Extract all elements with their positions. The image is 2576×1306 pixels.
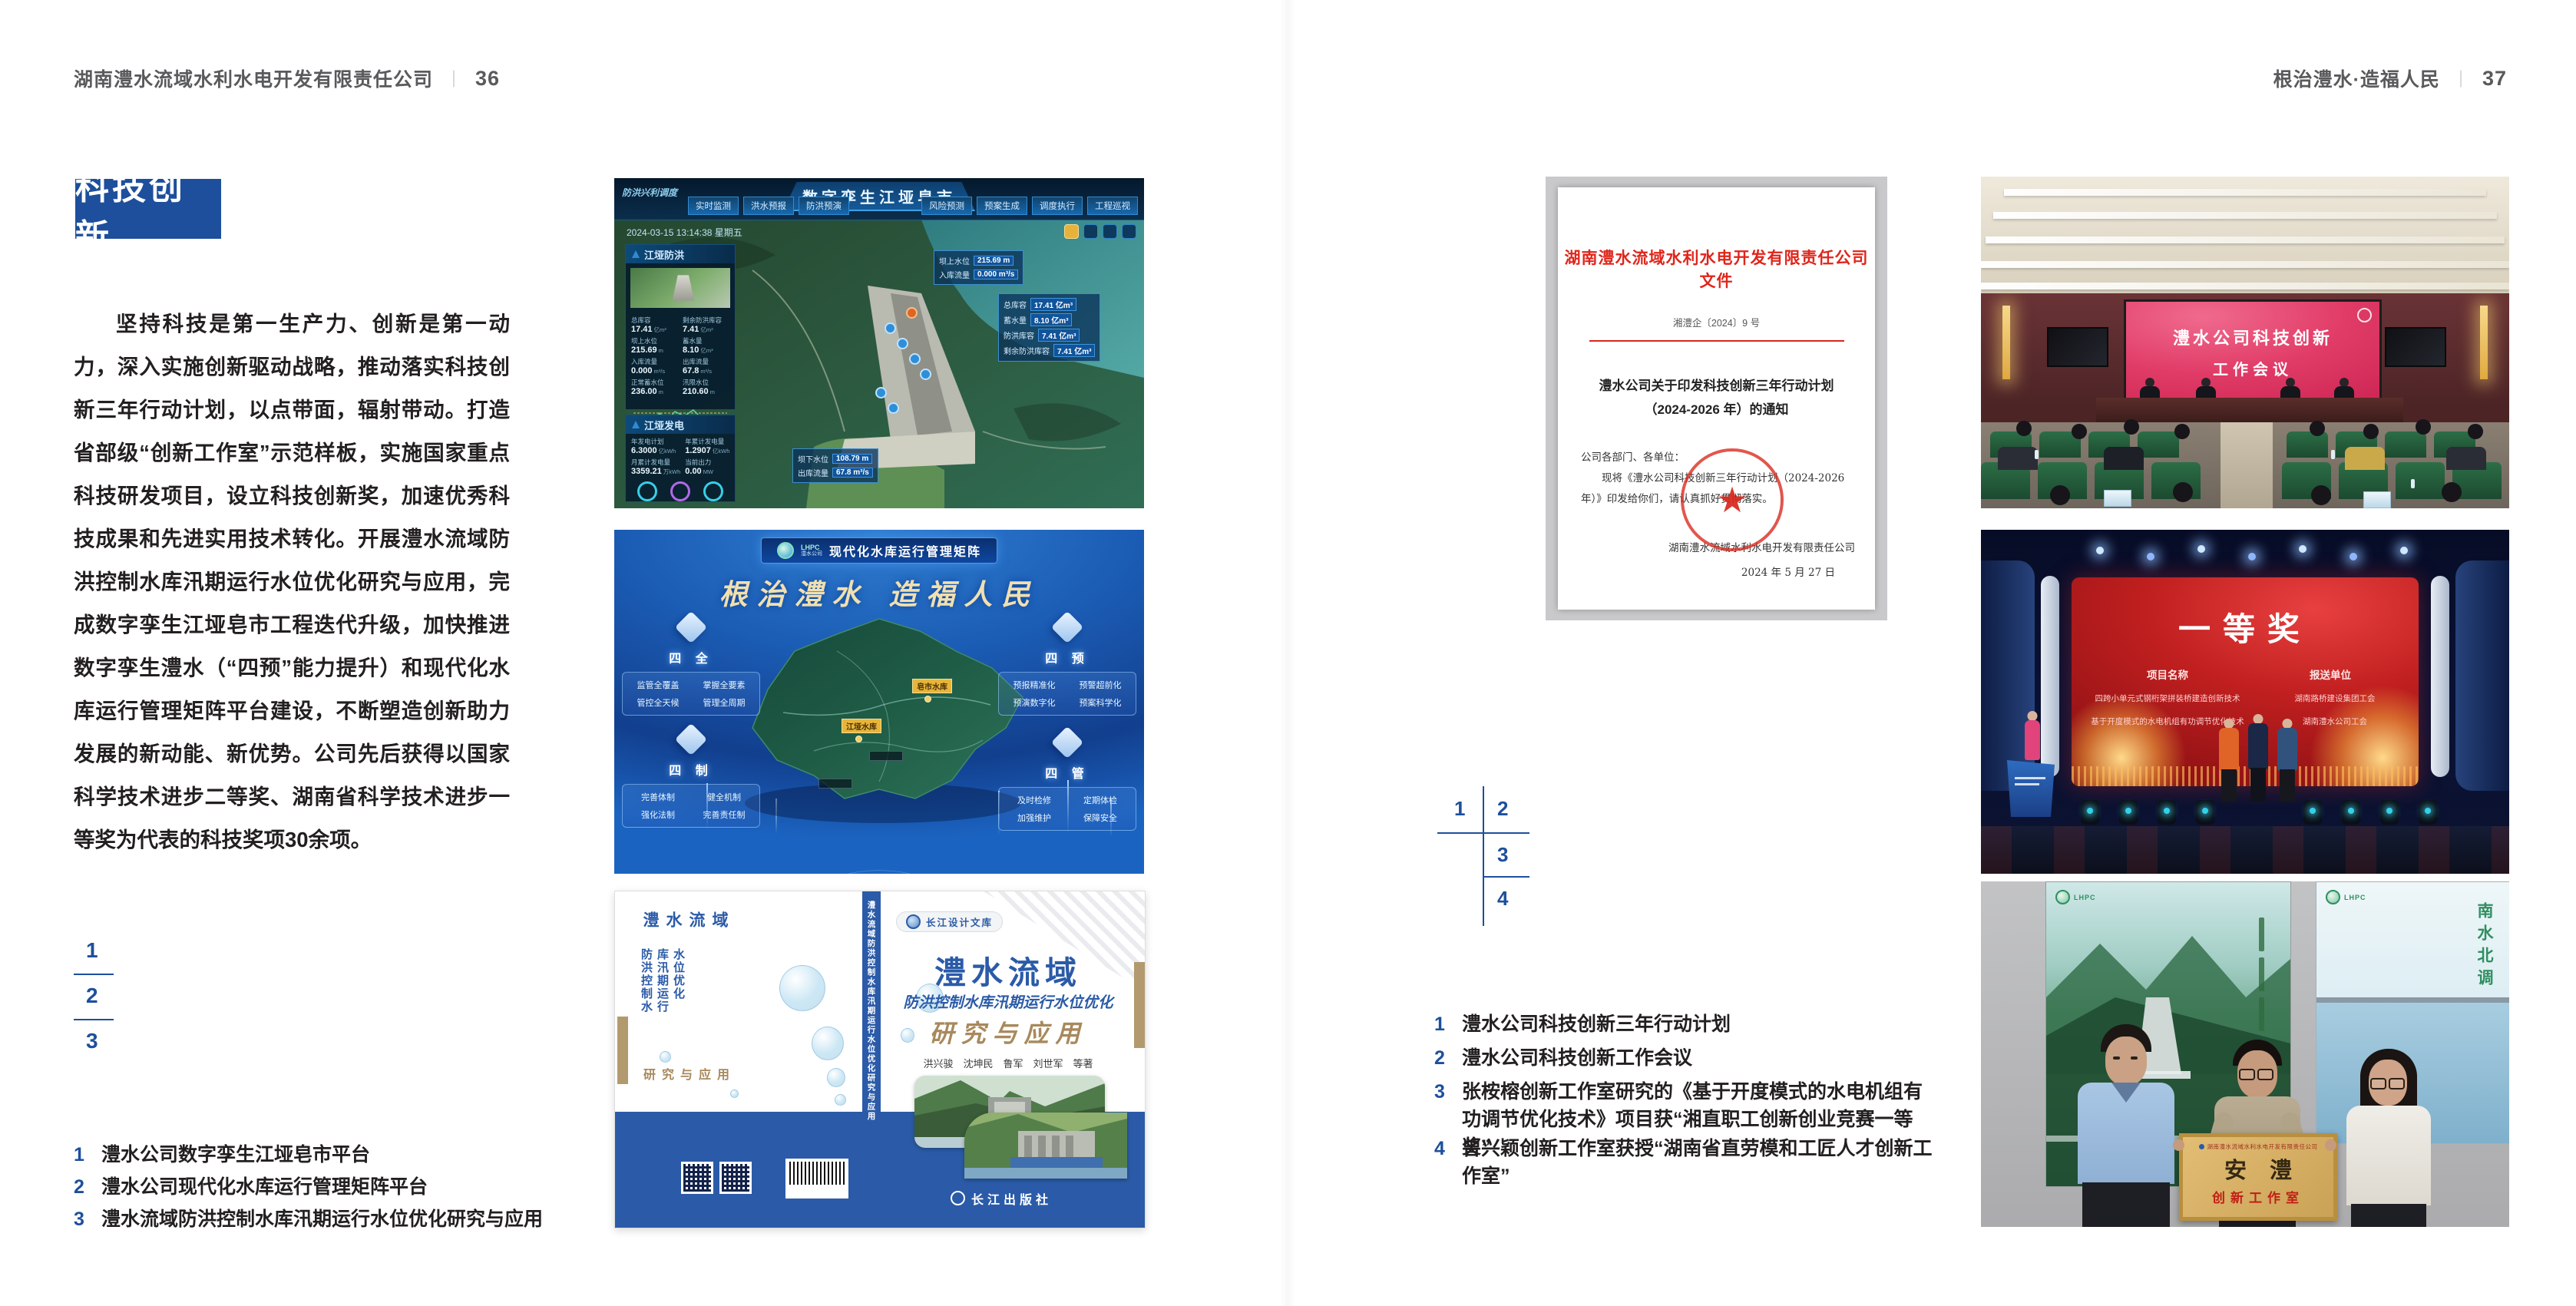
power-panel-title: 江垭发电 [626, 415, 735, 434]
moving-head-light [2119, 800, 2138, 825]
corner-item: 健全机制 [693, 791, 756, 803]
caption-text: 曾兴颖创新工作室获授“湖南省直劳模和工匠人才创新工作室” [1462, 1135, 1941, 1190]
host-podium [2007, 760, 2055, 817]
moving-head-light [2303, 800, 2322, 825]
timestamp: 2024-03-15 13:14:38 星期五 [627, 226, 742, 239]
platform-title: 现代化水库运行管理矩阵 [829, 541, 981, 560]
logo-abbr: LHPC [2344, 894, 2366, 901]
stat-value: 1.2907亿kWh [685, 446, 729, 455]
water-drop [812, 1027, 844, 1060]
photo-book-cover: 澧水流域 防洪控制水库汛期运行水位优化 研究与应用 澧水流域防洪控制水库汛期运行… [614, 891, 1146, 1228]
wall-tv [2047, 327, 2108, 367]
stat-label: 出库流量 [683, 357, 729, 366]
callout-value: 7.41 亿m³ [1053, 344, 1095, 357]
corner-title: 四 管 [1045, 763, 1089, 782]
caption-row: 1 澧水公司数字孪生江垭皂市平台 [74, 1141, 565, 1169]
caption-number: 3 [74, 1205, 89, 1233]
body-paragraph: 坚持科技是第一生产力、创新是第一动力，深入实施创新驱动战略，推动落实科技创新三年… [74, 303, 510, 861]
corner-item: 保障安全 [1069, 812, 1132, 824]
audience-head [2174, 424, 2190, 439]
marker-station [818, 779, 852, 789]
stage-light [2096, 547, 2104, 554]
document-title-line1: 澧水公司关于印发科技创新三年行动计划 [1558, 374, 1875, 398]
marker-zaoshi-reservoir: 皂市水库 [912, 679, 952, 693]
rostrum-person [2333, 378, 2356, 399]
rfig-index-3: 3 [1497, 843, 1508, 867]
moving-head-light [2196, 800, 2214, 825]
corner-item: 掌握全要素 [693, 679, 756, 691]
cube-icon [1051, 726, 1083, 759]
back-title-line3: 研究与应用 [638, 1068, 730, 1096]
rfig-horizontal-rule [1437, 832, 1529, 834]
alert-dot [906, 307, 918, 319]
stat-label: 入库流量 [631, 357, 678, 366]
photo-award-ceremony: 一等奖 项目名称 报送单位 四跨小单元式钢桁架拼装桥建造创新技术 基于开度模式的… [1981, 530, 2509, 874]
calligraphy-decor [2259, 997, 2264, 1031]
corner-item: 预报精准化 [1003, 679, 1066, 691]
stage-column [2431, 576, 2449, 777]
light-strip [1981, 261, 2509, 268]
sensor-dot [920, 369, 931, 380]
left-page-number: 36 [475, 67, 500, 91]
light-strip [1981, 283, 2509, 289]
rfig-index-2: 2 [1497, 797, 1508, 821]
rfig-vertical-rule [1483, 786, 1484, 926]
corner-group-sizhi: 四 制 完善体制 健全机制 强化法制 完善责任制 [625, 728, 757, 828]
plaque-org-line: 湖南澧水流域水利水电开发有限责任公司 [2183, 1142, 2333, 1151]
audience-body [1998, 447, 2038, 470]
audience-head [2124, 419, 2139, 435]
callout-downstream: 坝下水位108.79 m 出库流量67.8 m³/s [792, 448, 878, 483]
moving-head-light [2342, 800, 2360, 825]
body [2025, 720, 2040, 760]
tissue-box [2104, 490, 2131, 507]
stat-label: 月累计发电量 [631, 458, 680, 467]
right-page-header: 根治澧水·造福人民 ｜ 37 [2273, 64, 2507, 92]
company-name: 湖南澧水流域水利水电开发有限责任公司 [74, 64, 433, 92]
document-date: 2024 年 5 月 27 日 [1598, 564, 1835, 579]
star-icon: ★ [1716, 482, 1748, 517]
book-authors: 洪兴骏 沈坤民 鲁军 刘世军 等著 [880, 1056, 1136, 1070]
wall-tv [2385, 327, 2446, 367]
callout-label: 总库容 [1004, 299, 1027, 310]
callout-value: 215.69 m [974, 256, 1014, 266]
tab-dispatch-execution: 调度执行 [1032, 197, 1083, 215]
chair [2396, 462, 2445, 499]
callout-value: 8.10 亿m³ [1030, 313, 1072, 326]
rfig-index-1: 1 [1454, 797, 1465, 821]
dam-thumbnail [630, 268, 730, 308]
moving-head-light [2419, 800, 2437, 825]
gauge-unit2 [670, 481, 690, 501]
stat-label: 正常蓄水位 [631, 378, 678, 387]
callout-reservoir: 总库容17.41 亿m³ 蓄水量8.10 亿m³ 防洪库容7.41 亿m³ 剩余… [998, 293, 1100, 362]
corner-item: 管控全天候 [627, 696, 689, 709]
photo-official-document: 湖南澧水流域水利水电开发有限责任公司文件 湘澧企〔2024〕9 号 澧水公司关于… [1546, 177, 1887, 620]
document-page: 湖南澧水流域水利水电开发有限责任公司文件 湘澧企〔2024〕9 号 澧水公司关于… [1558, 187, 1875, 610]
water-drop [835, 1094, 846, 1106]
caption-row: 2 澧水公司科技创新工作会议 [1434, 1044, 1941, 1072]
lhpc-logo: LHPC [2326, 890, 2366, 904]
callout-value: 108.79 m [832, 454, 872, 464]
corner-item: 定期体检 [1069, 794, 1132, 806]
module-label: 防洪兴利调度 [622, 186, 677, 199]
lhpc-logo-icon [2326, 890, 2340, 904]
column-project-name: 项目名称 [2102, 666, 2233, 682]
audience-body [2104, 447, 2144, 470]
center-aisle [2221, 422, 2273, 508]
corner-item: 完善责任制 [693, 808, 756, 821]
corner-panel: 监管全覆盖 掌握全要素 管控全天候 管理全周期 [622, 672, 760, 716]
corner-title: 四 预 [1045, 648, 1089, 666]
stat-label: 年累计发电量 [685, 437, 729, 446]
recipient-blue [2276, 719, 2299, 803]
logo-abbr: LHPC [801, 544, 822, 551]
stat-label: 坝上水位 [631, 336, 678, 346]
caption-number: 2 [1434, 1044, 1450, 1072]
stat-value: 215.69m [631, 346, 678, 355]
page-gutter [1280, 0, 1295, 1306]
tan-block [617, 1017, 628, 1084]
water-drop [827, 1068, 845, 1087]
corner-item: 监管全覆盖 [627, 679, 689, 691]
stage-side-panel [2455, 560, 2509, 791]
audience-head [2442, 482, 2462, 502]
section-title: 科技创新 [75, 179, 221, 239]
cube-icon [1051, 611, 1083, 643]
stat-value: 0.00MW [685, 467, 729, 476]
light-strip [1986, 236, 2505, 243]
qr-code [681, 1162, 713, 1194]
hand [2325, 1139, 2336, 1151]
cube-icon [675, 611, 707, 643]
corner-item: 完善体制 [627, 791, 689, 803]
powerhouse-photo [964, 1113, 1127, 1179]
publisher-logo: 长江出版社 [921, 1189, 1082, 1208]
unit-row: 湖南路桥建设集团工会 [2270, 693, 2400, 704]
calligraphy-decor [2259, 918, 2264, 951]
back-title-line1: 澧水流域 [638, 911, 730, 941]
audience-head [2416, 419, 2431, 435]
photo-workshop-group: LHPC LHPC 南水北调 [1981, 881, 2509, 1227]
corner-item: 预演数字化 [1003, 696, 1066, 709]
legs [2250, 768, 2266, 802]
lhpc-logo-icon [777, 542, 794, 559]
book-spine: 澧水流域防洪控制水库汛期运行水位优化研究与应用 [862, 891, 881, 1228]
header-divider: ｜ [2452, 66, 2470, 91]
platform-header: LHPC澧水公司 现代化水库运行管理矩阵 [761, 537, 997, 564]
calligraphy-decor [2259, 957, 2264, 991]
corner-title: 四 全 [669, 648, 713, 666]
hand [2173, 1139, 2184, 1151]
corner-item: 加强维护 [1003, 812, 1066, 824]
legs [2221, 769, 2237, 802]
callout-value: 17.41 亿m³ [1030, 298, 1076, 311]
tab-realtime-monitoring: 实时监测 [688, 197, 739, 215]
caption-row: 3 澧水流域防洪控制水库汛期运行水位优化研究与应用 [74, 1205, 580, 1233]
rostrum-person [2194, 378, 2217, 399]
stat-label: 剩余防洪库容 [683, 316, 729, 325]
legs [2280, 769, 2295, 802]
settings-icon [1122, 224, 1136, 239]
back-cover-title: 澧水流域 防洪控制水库汛期运行水位优化 研究与应用 [638, 911, 730, 1096]
recipient-orange [2217, 719, 2240, 803]
stage-light [2400, 547, 2408, 554]
official-seal: ★ [1681, 448, 1784, 551]
water-bottle [2331, 450, 2335, 459]
body [2277, 728, 2297, 771]
podium-decor [2015, 783, 2039, 785]
figure-index-rule [74, 1019, 114, 1020]
figure-index-1: 1 [86, 938, 98, 963]
corner-panel: 及时检修 定期体检 加强维护 保障安全 [998, 787, 1136, 831]
moving-head-light [2380, 800, 2399, 825]
rfig-index-4: 4 [1497, 887, 1508, 911]
reflective-floor [1981, 826, 2509, 874]
water-bottle [2411, 479, 2415, 488]
person3-glasses [2370, 1078, 2405, 1089]
caption-number: 2 [74, 1173, 89, 1201]
stat-value: 17.41亿m³ [631, 325, 678, 334]
figure-index-2: 2 [86, 984, 98, 1008]
light-strip [1993, 212, 2497, 219]
led-screen: 一等奖 项目名称 报送单位 四跨小单元式钢桁架拼装桥建造创新技术 基于开度模式的… [2072, 577, 2419, 786]
caption-text: 澧水公司数字孪生江垭皂市平台 [101, 1141, 370, 1169]
bridge-deck [2316, 997, 2509, 1003]
callout-label: 蓄水量 [1004, 314, 1027, 326]
audience-head [2311, 485, 2331, 505]
stage-light [2299, 545, 2306, 553]
callout-label: 防洪库容 [1004, 329, 1034, 341]
marker-station [869, 751, 903, 761]
slogan-text: 根治澧水·造福人民 [2273, 64, 2440, 92]
legend-icon [1064, 224, 1079, 239]
rfig-horizontal-rule [1483, 876, 1529, 878]
caption-text: 澧水公司科技创新工作会议 [1462, 1044, 1692, 1072]
layers-icon [1083, 224, 1098, 239]
corner-item: 管理全周期 [693, 696, 756, 709]
power-stats: 年发电计划6.3000亿kWh 年累计发电量1.2907亿kWh 月累计发电量3… [626, 434, 735, 479]
stat-value: 3359.21万kWh [631, 467, 680, 476]
poster-caption-vertical: 南水北调 [2473, 902, 2496, 991]
stat-value: 67.8m³/s [683, 366, 729, 375]
caption-row: 1 澧水公司科技创新三年行动计划 [1434, 1010, 1941, 1038]
audience-head [2050, 485, 2070, 505]
caption-number: 1 [1434, 1010, 1450, 1038]
sensor-dot [888, 402, 899, 414]
caption-text: 澧水公司科技创新三年行动计划 [1462, 1010, 1731, 1038]
moving-head-light [2081, 800, 2099, 825]
corner-title: 四 制 [669, 760, 713, 779]
audience-head [2310, 421, 2325, 436]
stat-label: 汛限水位 [683, 378, 729, 387]
corner-item: 预案科学化 [1069, 696, 1132, 709]
stat-label: 总库容 [631, 316, 678, 325]
logo-abbr: LHPC [2074, 894, 2096, 901]
plaque-subtitle: 创新工作室 [2183, 1187, 2333, 1206]
photo-digital-twin-dashboard: 防洪兴利调度 数字孪生江垭皂市 实时监测 洪水预报 防洪预演 风险预测 预案生成… [614, 178, 1144, 508]
audience-body [2446, 447, 2486, 470]
audience-head [2468, 424, 2483, 439]
flood-panel: 江垭防洪 总库容17.41亿m³ 剩余防洪库容7.41亿m³ 坝上水位215.6… [625, 244, 736, 410]
toolbar-icons [1064, 224, 1136, 239]
series-badge: 长江设计文库 [896, 911, 1003, 932]
callout-label: 出库流量 [798, 467, 828, 478]
stage-light [2147, 553, 2154, 560]
rostrum-table [2096, 398, 2403, 422]
tab-plan-generation: 预案生成 [977, 197, 1027, 215]
skyline-decor [2072, 766, 2419, 786]
corner-panel: 预报精准化 预警超前化 预演数字化 预案科学化 [998, 672, 1136, 716]
sensor-dot [897, 338, 908, 349]
stat-label: 当前出力 [685, 458, 729, 467]
stat-value: 210.60m [683, 387, 729, 396]
callout-label: 坝上水位 [939, 255, 970, 266]
stat-value: 8.10亿m³ [683, 346, 729, 355]
document-number: 湘澧企〔2024〕9 号 [1558, 315, 1875, 329]
caption-text: 澧水公司现代化水库运行管理矩阵平台 [101, 1173, 428, 1201]
screen-title-line2: 工作会议 [2213, 357, 2293, 379]
light-strip [2004, 189, 2486, 196]
globe-icon [906, 914, 921, 929]
red-rule [1589, 340, 1844, 342]
marker-pin [855, 736, 862, 742]
back-title-line2: 防洪控制水库汛期运行水位优化 [638, 948, 730, 1017]
audience-head [2072, 424, 2087, 439]
water-drop [660, 1051, 671, 1063]
corner-group-siyu: 四 预 预报精准化 预警超前化 预演数字化 预案科学化 [1001, 616, 1133, 716]
lhpc-logo-icon [2055, 890, 2070, 904]
corner-group-siguan: 四 管 及时检修 定期体检 加强维护 保障安全 [1001, 731, 1133, 831]
document-title-line2: （2024-2026 年）的通知 [1558, 398, 1875, 422]
caption-number: 4 [1434, 1135, 1450, 1190]
audience-head [2016, 421, 2032, 436]
plaque-name: 安澧 [2183, 1152, 2333, 1185]
stage-light [2197, 545, 2205, 553]
column-submitting-unit: 报送单位 [2265, 666, 2396, 682]
book-title: 澧水流域 [880, 947, 1136, 993]
figure-index-rule [74, 974, 114, 975]
caption-row: 2 澧水公司现代化水库运行管理矩阵平台 [74, 1173, 565, 1201]
gauge-unit1 [637, 481, 657, 501]
book-subtitle: 防洪控制水库汛期运行水位优化 [877, 990, 1139, 1012]
person3-tshirt [2346, 1106, 2431, 1205]
project-row: 四跨小单元式钢桁架拼装桥建造创新技术 [2079, 693, 2256, 704]
header-divider: ｜ [445, 66, 463, 91]
glow-ring [832, 870, 927, 874]
audience-head [2173, 482, 2193, 502]
barcode [785, 1159, 848, 1199]
series-name: 长江设计文库 [926, 914, 993, 929]
tab-risk-forecast: 风险预测 [921, 197, 972, 215]
lhpc-logo: LHPC [2055, 890, 2096, 904]
corner-item: 强化法制 [627, 808, 689, 821]
document-header: 湖南澧水流域水利水电开发有限责任公司文件 [1558, 246, 1875, 292]
screen-title-line1: 澧水公司科技创新 [2173, 325, 2333, 349]
person1-pants [2082, 1182, 2170, 1227]
corner-item: 及时检修 [1003, 794, 1066, 806]
unit-gauges [626, 479, 735, 506]
flood-panel-title: 江垭防洪 [626, 245, 735, 263]
marker-jiangya-reservoir: 江垭水库 [842, 719, 881, 733]
caption-text: 澧水流域防洪控制水库汛期运行水位优化研究与应用 [101, 1205, 543, 1233]
tab-flood-rehearsal: 防洪预演 [799, 197, 849, 215]
chair [2385, 431, 2426, 458]
photo-matrix-platform: LHPC澧水公司 现代化水库运行管理矩阵 根治澧水 造福人民 皂市水库 江垭水库… [614, 530, 1144, 874]
person2-glasses [2239, 1069, 2273, 1080]
award-headline: 一等奖 [2072, 603, 2419, 650]
locate-icon [1103, 224, 1117, 239]
left-tab-group: 实时监测 洪水预报 防洪预演 [688, 197, 849, 215]
audience-body [2345, 447, 2385, 470]
callout-label: 入库流量 [939, 269, 970, 280]
marker-pin [924, 696, 931, 703]
rostrum-person [2138, 378, 2161, 399]
chair [2138, 431, 2179, 458]
person3-pants [2351, 1204, 2426, 1227]
person1-face [2105, 1037, 2147, 1086]
left-page-header: 湖南澧水流域水利水电开发有限责任公司 ｜ 36 [74, 64, 500, 92]
callout-value: 67.8 m³/s [832, 468, 873, 478]
stat-value: 7.41亿m³ [683, 325, 729, 334]
gauge-unit3 [703, 481, 723, 501]
wall-lamp [2002, 306, 2010, 379]
body [2248, 723, 2268, 769]
tissue-box [2363, 491, 2391, 508]
callout-label: 坝下水位 [798, 453, 828, 465]
caption-number: 1 [74, 1141, 89, 1169]
document-title: 澧水公司关于印发科技创新三年行动计划 （2024-2026 年）的通知 [1558, 374, 1875, 422]
callout-value: 7.41 亿m³ [1038, 329, 1080, 342]
callout-value: 0.000 m³/s [974, 269, 1018, 279]
chair [2287, 431, 2328, 458]
callout-upstream: 坝上水位215.69 m 入库流量0.000 m³/s [934, 250, 1023, 285]
tab-project-inspection: 工程巡视 [1087, 197, 1138, 215]
stat-label: 年发电计划 [631, 437, 680, 446]
publisher-name: 长江出版社 [971, 1192, 1052, 1207]
qr-code [719, 1162, 752, 1194]
right-page-number: 37 [2482, 67, 2507, 91]
body [2219, 728, 2239, 771]
basin-map [722, 597, 1044, 835]
podium-decor [2015, 777, 2045, 779]
workshop-plaque: 湖南澧水流域水利水电开发有限责任公司 安澧 创新工作室 [2179, 1133, 2337, 1221]
photo-innovation-meeting: 澧水公司科技创新 工作会议 [1981, 177, 2509, 508]
callout-label: 剩余防洪库容 [1004, 345, 1050, 356]
stat-value: 0.000m³/s [631, 366, 678, 375]
publisher-icon [951, 1191, 965, 1205]
sensor-dot [885, 322, 896, 334]
tan-block [1134, 962, 1145, 1048]
corner-item: 预警超前化 [1069, 679, 1132, 691]
wall-lamp [2480, 306, 2488, 379]
logo-name: 澧水公司 [801, 551, 822, 557]
stage-light [2349, 553, 2357, 560]
caption-row: 4 曾兴颖创新工作室获授“湖南省直劳模和工匠人才创新工作室” [1434, 1135, 1941, 1190]
cube-icon [675, 723, 707, 755]
sensor-dot [875, 387, 887, 398]
presenter-suit [2247, 714, 2270, 803]
water-bottle [2035, 450, 2039, 459]
water-drop [730, 1089, 739, 1098]
brochure-spread: 湖南澧水流域水利水电开发有限责任公司 ｜ 36 根治澧水·造福人民 ｜ 37 科… [0, 0, 2576, 1306]
power-panel: 江垭发电 年发电计划6.3000亿kWh 年累计发电量1.2907亿kWh 月累… [625, 415, 736, 502]
corner-panel: 完善体制 健全机制 强化法制 完善责任制 [622, 784, 760, 828]
host-figure [2021, 711, 2044, 765]
rostrum-person [2279, 378, 2302, 399]
audience-head [2363, 424, 2379, 439]
right-tab-group: 风险预测 预案生成 调度执行 工程巡视 [921, 197, 1138, 215]
